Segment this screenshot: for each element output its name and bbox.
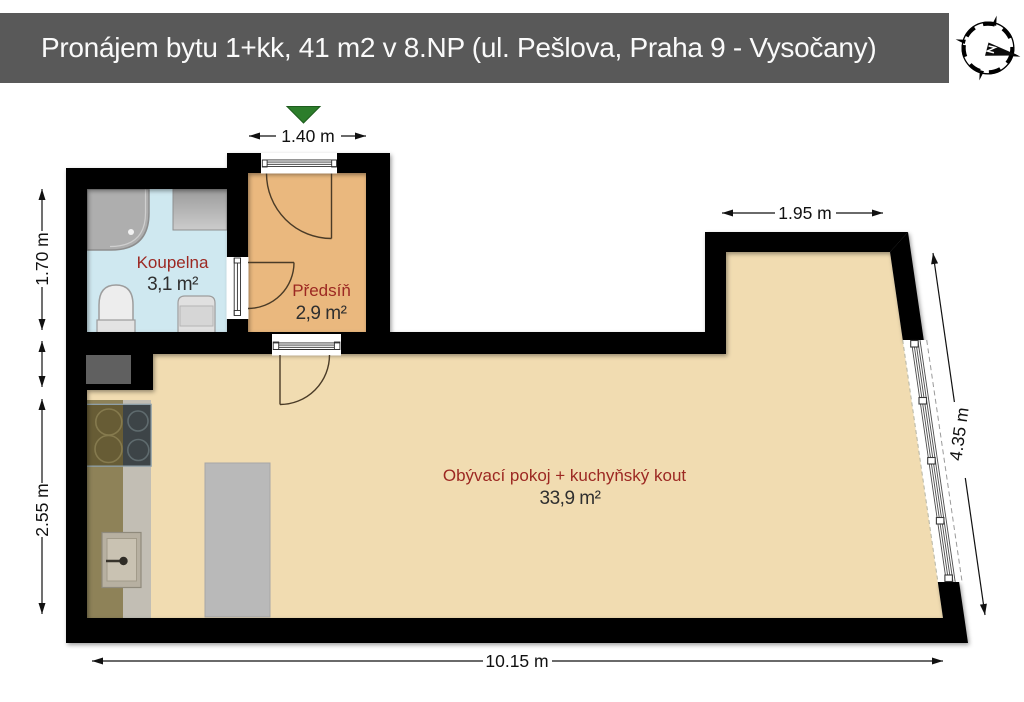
svg-text:Předsíň: Předsíň: [292, 281, 351, 300]
svg-text:33,9 m²: 33,9 m²: [540, 488, 601, 509]
svg-text:2.55 m: 2.55 m: [32, 483, 52, 537]
svg-text:4.35 m: 4.35 m: [945, 406, 972, 462]
svg-text:1.95 m: 1.95 m: [778, 203, 832, 223]
svg-text:1.40 m: 1.40 m: [281, 126, 335, 146]
svg-text:10.15 m: 10.15 m: [485, 651, 548, 671]
svg-text:3,1 m²: 3,1 m²: [147, 274, 198, 295]
svg-text:1.70 m: 1.70 m: [32, 232, 52, 286]
svg-text:2,9 m²: 2,9 m²: [296, 303, 347, 324]
svg-text:Obývací pokoj + kuchyňský kout: Obývací pokoj + kuchyňský kout: [443, 466, 687, 485]
svg-text:Koupelna: Koupelna: [137, 253, 209, 272]
svg-text:Pronájem bytu 1+kk, 41 m2 v 8.: Pronájem bytu 1+kk, 41 m2 v 8.NP (ul. Pe…: [41, 32, 876, 63]
